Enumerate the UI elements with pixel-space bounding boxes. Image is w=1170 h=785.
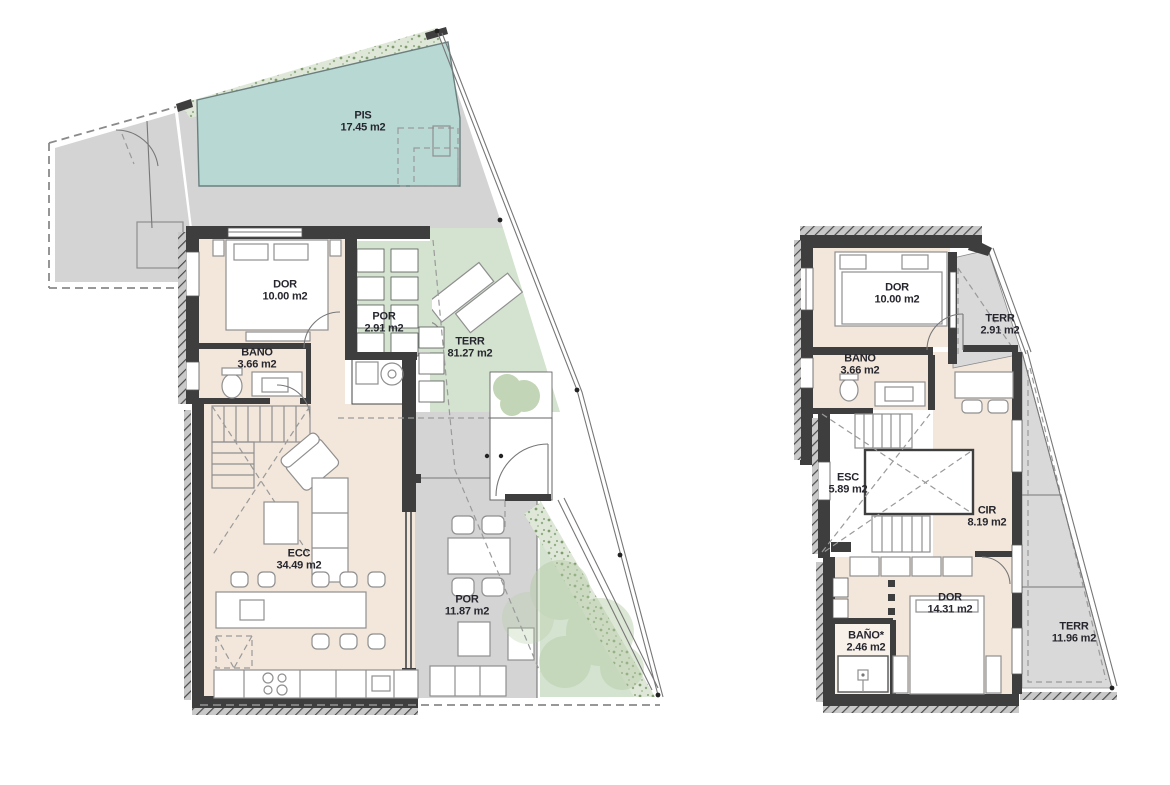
room-name: BANO	[238, 347, 277, 359]
room-label-bano-1: BANO 3.66 m2	[841, 353, 880, 376]
room-label-terr: TERR 81.27 m2	[448, 336, 493, 359]
room-name: PIS	[341, 110, 386, 122]
room-label-terr-1: TERR 2.91 m2	[981, 313, 1020, 336]
room-area: 14.31 m2	[928, 604, 973, 616]
room-label-bano-2: BAÑO* 2.46 m2	[847, 630, 886, 653]
room-area: 10.00 m2	[875, 294, 920, 306]
room-label-ecc: ECC 34.49 m2	[277, 548, 322, 571]
room-label-por: POR 11.87 m2	[445, 594, 489, 617]
floorplan-canvas: PIS 17.45 m2 DOR 10.00 m2 POR 2.91 m2 TE…	[0, 0, 1170, 785]
room-name: BAÑO*	[847, 630, 886, 642]
room-area: 10.00 m2	[263, 291, 308, 303]
room-name: DOR	[875, 282, 920, 294]
low-table	[458, 622, 490, 656]
room-area: 2.91 m2	[981, 325, 1020, 337]
room-name: TERR	[981, 313, 1020, 325]
room-area: 81.27 m2	[448, 348, 493, 360]
entrance	[485, 372, 552, 501]
patio-area	[49, 107, 190, 288]
room-label-terr-2: TERR 11.96 m2	[1052, 621, 1096, 644]
outdoor-sofa	[430, 666, 506, 696]
room-name: DOR	[928, 592, 973, 604]
room-name: BANO	[841, 353, 880, 365]
terrace2	[1020, 350, 1117, 700]
room-name: ECC	[277, 548, 322, 560]
vestibule	[490, 418, 552, 500]
room-name: DOR	[263, 279, 308, 291]
floorplan-drawing	[0, 0, 1170, 785]
room-area: 3.66 m2	[238, 359, 277, 371]
room-area: 17.45 m2	[341, 122, 386, 134]
room-name: ESC	[829, 472, 868, 484]
room-name: TERR	[1052, 621, 1096, 633]
room-label-bano: BANO 3.66 m2	[238, 347, 277, 370]
room-label-dor-2: DOR 14.31 m2	[928, 592, 973, 615]
stair-void	[865, 450, 973, 514]
room-label-pis: PIS 17.45 m2	[341, 110, 386, 133]
room-area: 11.96 m2	[1052, 633, 1096, 645]
room-label-por-small: POR 2.91 m2	[365, 311, 404, 334]
room-area: 8.19 m2	[968, 517, 1007, 529]
room-label-esc: ESC 5.89 m2	[829, 472, 868, 495]
room-name: CIR	[968, 505, 1007, 517]
room-area: 3.66 m2	[841, 365, 880, 377]
bathroom2-fixtures	[838, 656, 888, 692]
room-name: POR	[445, 594, 489, 606]
room-label-dor: DOR 10.00 m2	[263, 279, 308, 302]
room-label-dor-1: DOR 10.00 m2	[875, 282, 920, 305]
counter	[214, 670, 418, 698]
room-name: POR	[365, 311, 404, 323]
room-area: 2.91 m2	[365, 323, 404, 335]
room-area: 5.89 m2	[829, 484, 868, 496]
coffee-table	[264, 502, 298, 544]
room-area: 11.87 m2	[445, 606, 489, 618]
room-label-cir: CIR 8.19 m2	[968, 505, 1007, 528]
room-area: 2.46 m2	[847, 642, 886, 654]
room-name: TERR	[448, 336, 493, 348]
room-area: 34.49 m2	[277, 560, 322, 572]
